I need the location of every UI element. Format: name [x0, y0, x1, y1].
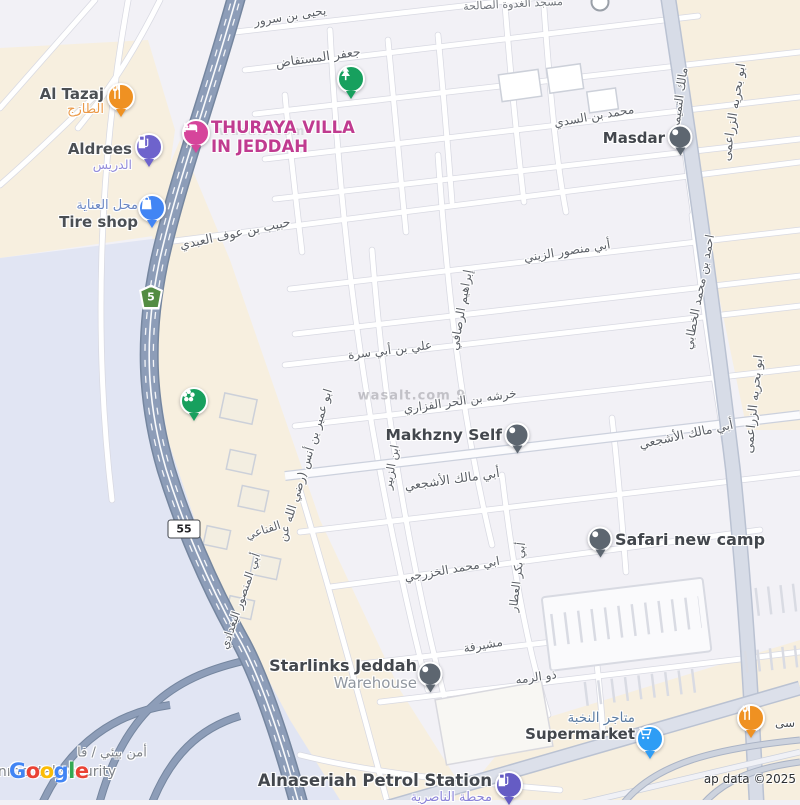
flower-icon	[180, 387, 208, 415]
poi-label-line: الدريس	[68, 158, 132, 172]
poi-label-line: Al Tazaj	[40, 86, 104, 103]
poi-al-tazaj[interactable]	[107, 83, 135, 117]
google-logo-letter: G	[9, 759, 26, 783]
pin-tail	[746, 730, 756, 738]
dot-icon	[418, 662, 443, 687]
dot-icon	[588, 527, 613, 552]
google-logo-letter: o	[26, 759, 40, 783]
poi-tire-shop[interactable]	[138, 194, 166, 228]
map-root: wasalt.com 9wasalt.com يحيى بن سرورجعفر …	[0, 0, 800, 800]
google-logo-letter: g	[54, 759, 69, 783]
poi-label-line: THURAYA VILLA	[211, 119, 355, 138]
pin-tail	[191, 145, 201, 153]
poi-park-tree[interactable]	[337, 65, 365, 99]
poi-label-line: Starlinks Jeddah	[269, 657, 417, 675]
dot-icon	[505, 423, 530, 448]
poi-label-alnaseriah-petrol[interactable]: Alnaseriah Petrol Stationمحطة الناصرية	[258, 772, 492, 805]
pin-tail	[595, 550, 605, 558]
google-logo-letter: o	[40, 759, 54, 783]
dot-icon	[668, 125, 693, 150]
poi-label-line: IN JEDDAH	[211, 138, 355, 157]
poi-label-line: محل العناية	[59, 199, 138, 214]
poi-label-al-tazaj[interactable]: Al Tazajالطازج	[40, 86, 104, 118]
poi-label-makhzny-self[interactable]: Makhzny Self	[385, 427, 502, 445]
poi-label-aldrees[interactable]: Aldreesالدريس	[68, 141, 132, 172]
google-logo[interactable]: Google	[9, 759, 89, 783]
pin-tail	[675, 148, 685, 156]
poi-label-line: Aldrees	[68, 141, 132, 158]
pin-tail	[147, 220, 157, 228]
poi-label-line: Masdar	[603, 130, 665, 147]
poi-label-line: محطة الناصرية	[258, 791, 492, 805]
pin-tail	[144, 159, 154, 167]
poi-aldrees[interactable]	[135, 133, 163, 167]
poi-label-line: متاجر النخبة	[525, 711, 635, 726]
poi-thuraya-villa[interactable]	[182, 119, 210, 153]
poi-supermarket-elite[interactable]	[636, 725, 664, 759]
poi-label-line: الطازج	[40, 103, 104, 118]
hotel-icon	[182, 119, 210, 147]
cart-icon	[636, 725, 664, 753]
restaurant-icon	[107, 83, 135, 111]
poi-safari-new-camp[interactable]	[588, 527, 613, 558]
poi-label-thuraya-villa[interactable]: THURAYA VILLAIN JEDDAH	[211, 119, 355, 156]
poi-ring-marker	[591, 0, 610, 12]
shopping-bag-icon	[138, 194, 166, 222]
pin-tail	[189, 413, 199, 421]
poi-label-masdar[interactable]: Masdar	[603, 130, 665, 147]
poi-masdar[interactable]	[668, 125, 693, 156]
gas-pump-icon	[495, 771, 523, 799]
pin-tail	[512, 446, 522, 454]
gas-pump-icon	[135, 133, 163, 161]
poi-label-restaurant-southeast[interactable]: سى	[775, 717, 795, 731]
pin-tail	[645, 751, 655, 759]
poi-label-tire-shop[interactable]: محل العنايةTire shop	[59, 199, 138, 231]
poi-label-safari-new-camp[interactable]: Safari new camp	[615, 531, 765, 549]
poi-garden-flower[interactable]	[180, 387, 208, 421]
poi-label-line: Tire shop	[59, 214, 138, 231]
poi-label-line: سى	[775, 717, 795, 731]
poi-restaurant-southeast[interactable]	[737, 704, 765, 738]
poi-makhzny-self[interactable]	[505, 423, 530, 454]
google-logo-letter: l	[68, 759, 75, 783]
pin-tail	[346, 91, 356, 99]
pin-tail	[504, 797, 514, 805]
pin-tail	[425, 685, 435, 693]
poi-label-line: Safari new camp	[615, 531, 765, 549]
poi-mosque-marker[interactable]	[591, 0, 610, 12]
map-attribution: ap data ©2025	[704, 772, 796, 786]
poi-starlinks-jeddah[interactable]	[418, 662, 443, 693]
poi-label-line: Makhzny Self	[385, 427, 502, 445]
poi-label-line: Supermarket	[525, 726, 635, 743]
poi-label-line: Alnaseriah Petrol Station	[258, 772, 492, 791]
poi-label-supermarket-elite[interactable]: متاجر النخبةSupermarket	[525, 711, 635, 743]
restaurant-icon	[737, 704, 765, 732]
pin-tail	[116, 109, 126, 117]
tree-icon	[337, 65, 365, 93]
poi-label-starlinks-jeddah[interactable]: Starlinks JeddahWarehouse	[269, 657, 417, 692]
poi-label-line: Warehouse	[269, 675, 417, 692]
google-logo-letter: e	[75, 759, 89, 783]
